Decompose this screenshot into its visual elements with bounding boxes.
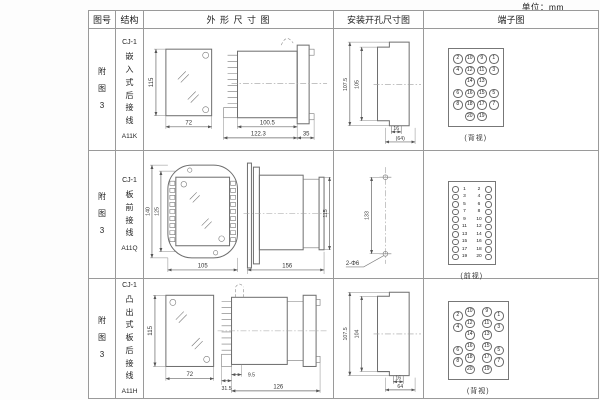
dim-label-total-length: 126 — [273, 384, 284, 390]
dim-label-front-height: 115 — [149, 77, 155, 87]
terminal-diagram: 1234567891011121314151617181920 (前视) — [448, 181, 496, 281]
dim-label-flange-depth: 35 — [303, 131, 310, 137]
terminal-number: 10 — [476, 217, 483, 222]
outline-drawing-cell-row3: 115 72 31.5 — [144, 279, 334, 398]
terminal-view-label: (背视) — [464, 133, 487, 143]
column-header-fig-no: 图号 — [89, 11, 116, 29]
terminal-number: 5 — [461, 202, 468, 207]
terminal-row: 1718 — [452, 246, 492, 253]
terminal-row: 1920 — [452, 254, 492, 261]
terminal-circle: 6 — [453, 346, 463, 356]
terminal-circle: 4 — [453, 323, 463, 333]
terminal-circle: 19 — [482, 365, 492, 375]
structure-cell-row1: CJ-1 嵌 入 式 后 接 线 A11K — [116, 29, 144, 151]
terminal-circle — [452, 201, 459, 208]
terminal-row: 1112 — [452, 224, 492, 231]
terminal-circle: 12 — [465, 319, 475, 329]
terminal-circle: 18 — [465, 353, 475, 363]
mount-type-label: 嵌 入 式 后 接 线 — [125, 51, 133, 128]
terminal-box: 1234567891011121314151617181920 — [448, 181, 496, 265]
terminal-spacer — [453, 112, 463, 122]
front-view: 140 125 105 — [145, 165, 237, 272]
dim-label-gap: 9.5 — [248, 373, 255, 379]
terminal-circle — [485, 254, 492, 261]
terminal-circle: 19 — [477, 112, 487, 122]
terminal-circle: 11 — [482, 319, 492, 329]
column-header-mounting: 安装开孔尺寸图 — [334, 11, 424, 29]
terminal-circle: 8 — [453, 357, 463, 367]
dim-label-inner-height: 105 — [355, 80, 361, 89]
model-code-label: A11Q — [121, 245, 137, 252]
terminal-spacer — [453, 334, 463, 344]
terminal-circle — [452, 216, 459, 223]
terminal-row: 21091 — [453, 307, 504, 317]
terminal-circle: 3 — [494, 323, 504, 333]
terminal-circle — [485, 209, 492, 216]
terminal-circle: 16 — [465, 89, 475, 99]
structure-cell-row2: CJ-1 板 前 接 线 A11Q — [116, 151, 144, 279]
terminal-spacer — [489, 112, 499, 122]
dim-label-hole-callout: 2-Φ6 — [346, 261, 360, 267]
terminal-number: 9 — [461, 217, 468, 222]
terminal-circle — [485, 224, 492, 231]
terminal-circle: 17 — [477, 100, 487, 110]
model-code-label: A11H — [122, 388, 138, 395]
terminal-number: 7 — [461, 209, 468, 214]
outline-drawing-cell-row1: 115 72 100.5 — [144, 29, 334, 151]
terminal-circle: 10 — [465, 307, 475, 317]
dim-label-outer-height: 107.5 — [343, 78, 349, 91]
terminal-circle: 17 — [482, 353, 492, 363]
terminal-spacer — [494, 334, 504, 344]
column-header-outline: 外 形 尺 寸 图 — [144, 11, 334, 29]
dim-label-hole-distance: 133 — [365, 211, 371, 220]
front-view: 115 72 — [149, 49, 212, 129]
terminal-circle — [452, 186, 459, 193]
terminal-circle — [452, 231, 459, 238]
terminal-circle: 18 — [465, 100, 475, 110]
terminal-row: 910 — [452, 216, 492, 223]
mounting-drawing-cell-row1: 107.5 105 16 (64) — [334, 29, 424, 151]
terminal-row: 1413 — [453, 77, 499, 87]
terminal-number: 15 — [461, 239, 468, 244]
terminal-number: 17 — [461, 247, 468, 252]
fig-no-cell-row2: 附 图 3 — [89, 151, 116, 279]
terminal-row: 12 — [452, 186, 492, 193]
outline-drawing-a11q: 140 125 105 156 — [144, 151, 333, 278]
terminal-number: 12 — [476, 224, 483, 229]
terminal-number: 6 — [476, 202, 483, 207]
dim-label-side-height: 115 — [323, 209, 329, 217]
terminal-row: 818177 — [453, 100, 499, 110]
terminal-cell-row3: 2109141211314136161558181772019 (背视) — [424, 279, 598, 398]
terminal-circle — [452, 239, 459, 246]
outline-drawing-a11h: 115 72 31.5 — [144, 279, 333, 398]
dim-label-side-length: 156 — [282, 263, 293, 269]
terminal-circle: 4 — [453, 66, 463, 76]
mount-type-label: 板 前 接 线 — [125, 189, 133, 240]
dim-label-slot-width: 16 — [393, 126, 399, 132]
terminal-cell-row2: 1234567891011121314151617181920 (前视) — [424, 151, 598, 279]
dim-label-front-width: 105 — [198, 263, 209, 269]
relay-spec-table: 图号 结构 外 形 尺 寸 图 安装开孔尺寸图 端子图 附 图 3 CJ-1 嵌… — [88, 10, 599, 399]
column-header-structure: 结构 — [116, 11, 144, 29]
model-label: CJ-1 — [122, 282, 137, 289]
terminal-circle: 1 — [489, 54, 499, 64]
terminal-circle: 11 — [477, 66, 487, 76]
dim-label-front-outer-height: 140 — [145, 207, 151, 216]
side-view: 100.5 122.3 35 — [224, 39, 327, 140]
terminal-circle: 7 — [489, 100, 499, 110]
terminal-circle — [452, 246, 459, 253]
terminal-circle: 13 — [482, 330, 492, 340]
dim-label-total-width: 64 — [397, 384, 403, 390]
model-label: CJ-1 — [122, 39, 137, 46]
terminal-circle — [452, 209, 459, 216]
terminal-circle: 13 — [477, 77, 487, 87]
fig-no-cell-row1: 附 图 3 — [89, 29, 116, 151]
terminal-row: 1516 — [452, 239, 492, 246]
mounting-drawing-a11q: 133 2-Φ6 — [334, 151, 423, 278]
dim-label-outer-height: 107.5 — [343, 327, 349, 340]
side-view: 156 115 — [243, 163, 331, 274]
terminal-circle — [452, 224, 459, 231]
terminal-number: 13 — [461, 232, 468, 237]
mounting-drawing-cell-row2: 133 2-Φ6 — [334, 151, 424, 279]
mount-type-label: 凸 出 式 板 后 接 线 — [126, 294, 134, 384]
terminal-circle — [485, 231, 492, 238]
terminal-circle — [485, 186, 492, 193]
terminal-circle: 9 — [477, 54, 487, 64]
terminal-spacer — [453, 77, 463, 87]
terminal-circle: 16 — [465, 342, 475, 352]
mounting-drawing-cell-row3: 107.5 104 16 64 — [334, 279, 424, 398]
fig-no-cell-row3: 附 图 3 — [89, 279, 116, 398]
terminal-number: 16 — [476, 239, 483, 244]
terminal-circle — [485, 239, 492, 246]
terminal-circle: 6 — [453, 89, 463, 99]
terminal-circle: 3 — [489, 66, 499, 76]
terminal-number: 19 — [461, 254, 468, 259]
terminal-circle: 1 — [494, 311, 504, 321]
terminal-row: 56 — [452, 201, 492, 208]
dim-label-front-width: 72 — [186, 372, 193, 378]
terminal-circle: 10 — [465, 54, 475, 64]
terminal-circle — [485, 201, 492, 208]
column-header-terminal: 端子图 — [424, 11, 598, 29]
dim-label-body-length: 100.5 — [260, 120, 276, 126]
terminal-row: 34 — [452, 194, 492, 201]
terminal-row: 616155 — [453, 89, 499, 99]
front-view: 115 72 — [148, 295, 214, 380]
terminal-spacer — [494, 369, 504, 379]
terminal-number: 18 — [476, 247, 483, 252]
model-label: CJ-1 — [122, 177, 137, 184]
model-code-label: A11K — [122, 133, 137, 140]
dim-label-slot-width: 16 — [395, 376, 401, 382]
terminal-circle: 20 — [465, 365, 475, 375]
terminal-circle: 12 — [465, 66, 475, 76]
fig-no-text: 附 图 3 — [98, 189, 106, 239]
terminal-number: 14 — [476, 232, 483, 237]
terminal-circle — [452, 194, 459, 201]
terminal-number: 4 — [476, 194, 483, 199]
terminal-circle: 8 — [453, 100, 463, 110]
dim-label-total-length: 122.3 — [251, 131, 267, 137]
terminal-circle — [485, 246, 492, 253]
terminal-circle — [485, 216, 492, 223]
terminal-number: 8 — [476, 209, 483, 214]
terminal-circle: 2 — [453, 54, 463, 64]
terminal-circle: 14 — [465, 77, 475, 87]
terminal-spacer — [453, 369, 463, 379]
fig-no-text: 附 图 3 — [98, 313, 106, 363]
terminal-row: 412113 — [453, 66, 499, 76]
terminal-number: 11 — [461, 224, 468, 229]
fig-no-text: 附 图 3 — [98, 64, 106, 114]
side-view: 31.5 9.5 126 — [218, 284, 327, 393]
dim-label-inner-height: 104 — [355, 329, 361, 338]
terminal-row: 78 — [452, 209, 492, 216]
terminal-circle: 5 — [489, 89, 499, 99]
document-page: 单位：mm 图号 结构 外 形 尺 寸 图 安装开孔尺寸图 端子图 附 图 3 … — [0, 0, 600, 400]
terminal-circle: 2 — [453, 311, 463, 321]
terminal-circle: 7 — [494, 357, 504, 367]
terminal-diagram: 2109141211314136161558181772019 (背视) — [448, 301, 509, 396]
terminal-circle: 9 — [482, 307, 492, 317]
terminal-box: 2109141211314136161558181772019 — [448, 48, 504, 127]
terminal-view-label: (背视) — [467, 386, 490, 396]
dim-label-front-width: 72 — [185, 120, 192, 126]
terminal-number: 20 — [476, 254, 483, 259]
terminal-box: 2109141211314136161558181772019 — [448, 301, 509, 380]
dim-label-comb-width: 31.5 — [222, 386, 232, 392]
mounting-drawing-a11h: 107.5 104 16 64 — [334, 279, 423, 398]
terminal-circle: 15 — [477, 89, 487, 99]
terminal-number: 2 — [476, 187, 483, 192]
terminal-diagram: 2109141211314136161558181772019 (背视) — [448, 48, 504, 143]
outline-drawing-a11k: 115 72 100.5 — [144, 29, 333, 150]
terminal-row: 2019 — [453, 112, 499, 122]
terminal-circle — [485, 194, 492, 201]
dim-label-front-inner-height: 125 — [154, 207, 160, 216]
mounting-drawing-a11k: 107.5 105 16 (64) — [334, 29, 423, 150]
terminal-spacer — [489, 77, 499, 87]
dim-label-front-height: 115 — [148, 325, 154, 335]
terminal-number: 3 — [461, 194, 468, 199]
terminal-circle: 20 — [465, 112, 475, 122]
terminal-row: 1314 — [452, 231, 492, 238]
terminal-cell-row1: 2109141211314136161558181772019 (背视) — [424, 29, 598, 151]
terminal-circle: 5 — [494, 346, 504, 356]
structure-cell-row3: CJ-1 凸 出 式 板 后 接 线 A11H — [116, 279, 144, 398]
dim-label-total-width: (64) — [396, 136, 405, 142]
terminal-circle: 15 — [482, 342, 492, 352]
terminal-row: 21091 — [453, 54, 499, 64]
outline-drawing-cell-row2: 140 125 105 156 — [144, 151, 334, 279]
terminal-number: 1 — [461, 187, 468, 192]
terminal-circle: 14 — [465, 330, 475, 340]
terminal-circle — [452, 254, 459, 261]
